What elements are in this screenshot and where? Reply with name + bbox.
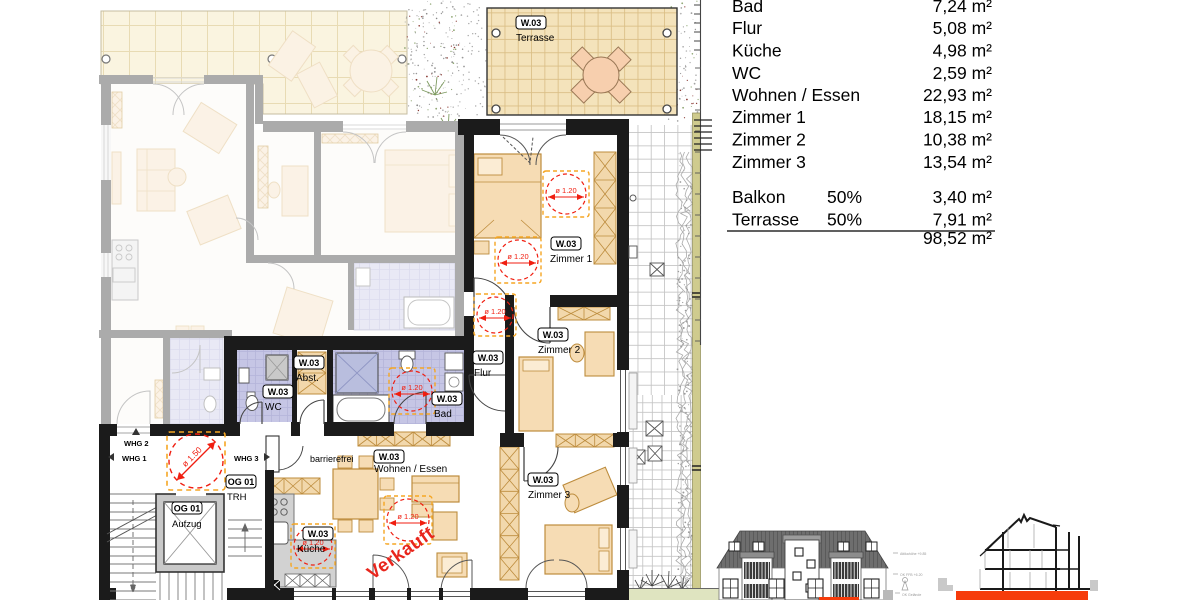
svg-text:W.03: W.03: [521, 18, 542, 28]
svg-text:Bad: Bad: [732, 0, 763, 16]
svg-text:Zimmer 3: Zimmer 3: [528, 490, 571, 501]
svg-text:W.03: W.03: [533, 475, 554, 485]
svg-text:W.03: W.03: [437, 394, 458, 404]
svg-text:Aufzug: Aufzug: [172, 519, 202, 530]
svg-text:Wohnen / Essen: Wohnen / Essen: [374, 464, 447, 475]
svg-text:OK Gelände: OK Gelände: [902, 593, 921, 597]
svg-text:barrierefrei: barrierefrei: [310, 454, 354, 464]
svg-text:W.03: W.03: [478, 353, 499, 363]
svg-text:Terrasse: Terrasse: [732, 210, 799, 230]
svg-text:OG 01: OG 01: [228, 477, 255, 487]
svg-text:Flur: Flur: [732, 18, 762, 38]
svg-text:Zimmer 3: Zimmer 3: [732, 152, 806, 172]
svg-text:Zimmer 1: Zimmer 1: [550, 254, 593, 265]
svg-text:7,91 m²: 7,91 m²: [933, 210, 992, 230]
svg-text:ø 1.20: ø 1.20: [401, 383, 422, 392]
svg-text:W.03: W.03: [268, 387, 289, 397]
svg-text:13,54 m²: 13,54 m²: [923, 152, 992, 172]
svg-text:WHG 3: WHG 3: [234, 454, 259, 463]
svg-text:5,08 m²: 5,08 m²: [933, 18, 992, 38]
svg-text:50%: 50%: [827, 187, 862, 207]
svg-text:Zimmer 2: Zimmer 2: [732, 130, 806, 150]
svg-text:WC: WC: [732, 63, 761, 83]
svg-text:50%: 50%: [827, 210, 862, 230]
svg-text:W.03: W.03: [299, 358, 320, 368]
svg-text:WHG 1: WHG 1: [122, 454, 147, 463]
svg-text:ø 1.20: ø 1.20: [397, 512, 418, 521]
svg-text:Zimmer 1: Zimmer 1: [732, 107, 806, 127]
svg-text:Bad: Bad: [434, 409, 452, 420]
svg-text:OK FFB +6.20: OK FFB +6.20: [900, 573, 923, 577]
svg-text:10,38 m²: 10,38 m²: [923, 130, 992, 150]
svg-text:3,40 m²: 3,40 m²: [933, 187, 992, 207]
svg-text:W.03: W.03: [308, 529, 329, 539]
svg-text:Wohnen / Essen: Wohnen / Essen: [732, 85, 860, 105]
svg-text:W.03: W.03: [543, 330, 564, 340]
svg-text:WC: WC: [265, 402, 282, 413]
svg-text:TRH: TRH: [227, 492, 247, 503]
svg-text:OG 01: OG 01: [174, 504, 201, 514]
svg-text:W.03: W.03: [379, 452, 400, 462]
svg-text:Küche: Küche: [297, 544, 326, 555]
svg-text:22,93 m²: 22,93 m²: [923, 85, 992, 105]
svg-text:Zimmer 2: Zimmer 2: [538, 345, 581, 356]
svg-text:7,24 m²: 7,24 m²: [933, 0, 992, 16]
svg-text:WHG 2: WHG 2: [124, 439, 149, 448]
svg-text:ø 1.20: ø 1.20: [555, 186, 576, 195]
svg-text:ø 1.20: ø 1.20: [507, 252, 528, 261]
svg-text:Balkon: Balkon: [732, 187, 786, 207]
svg-text:Flur: Flur: [474, 368, 492, 379]
svg-text:18,15 m²: 18,15 m²: [923, 107, 992, 127]
svg-text:ø 1.20: ø 1.20: [484, 307, 505, 316]
svg-text:Terrasse: Terrasse: [516, 33, 555, 44]
svg-text:Abst.: Abst.: [296, 373, 319, 384]
svg-text:Attikahöhe +9.85: Attikahöhe +9.85: [900, 552, 926, 556]
svg-text:Küche: Küche: [732, 41, 782, 61]
svg-text:2,59 m²: 2,59 m²: [933, 63, 992, 83]
svg-text:4,98 m²: 4,98 m²: [933, 41, 992, 61]
svg-text:W.03: W.03: [556, 239, 577, 249]
